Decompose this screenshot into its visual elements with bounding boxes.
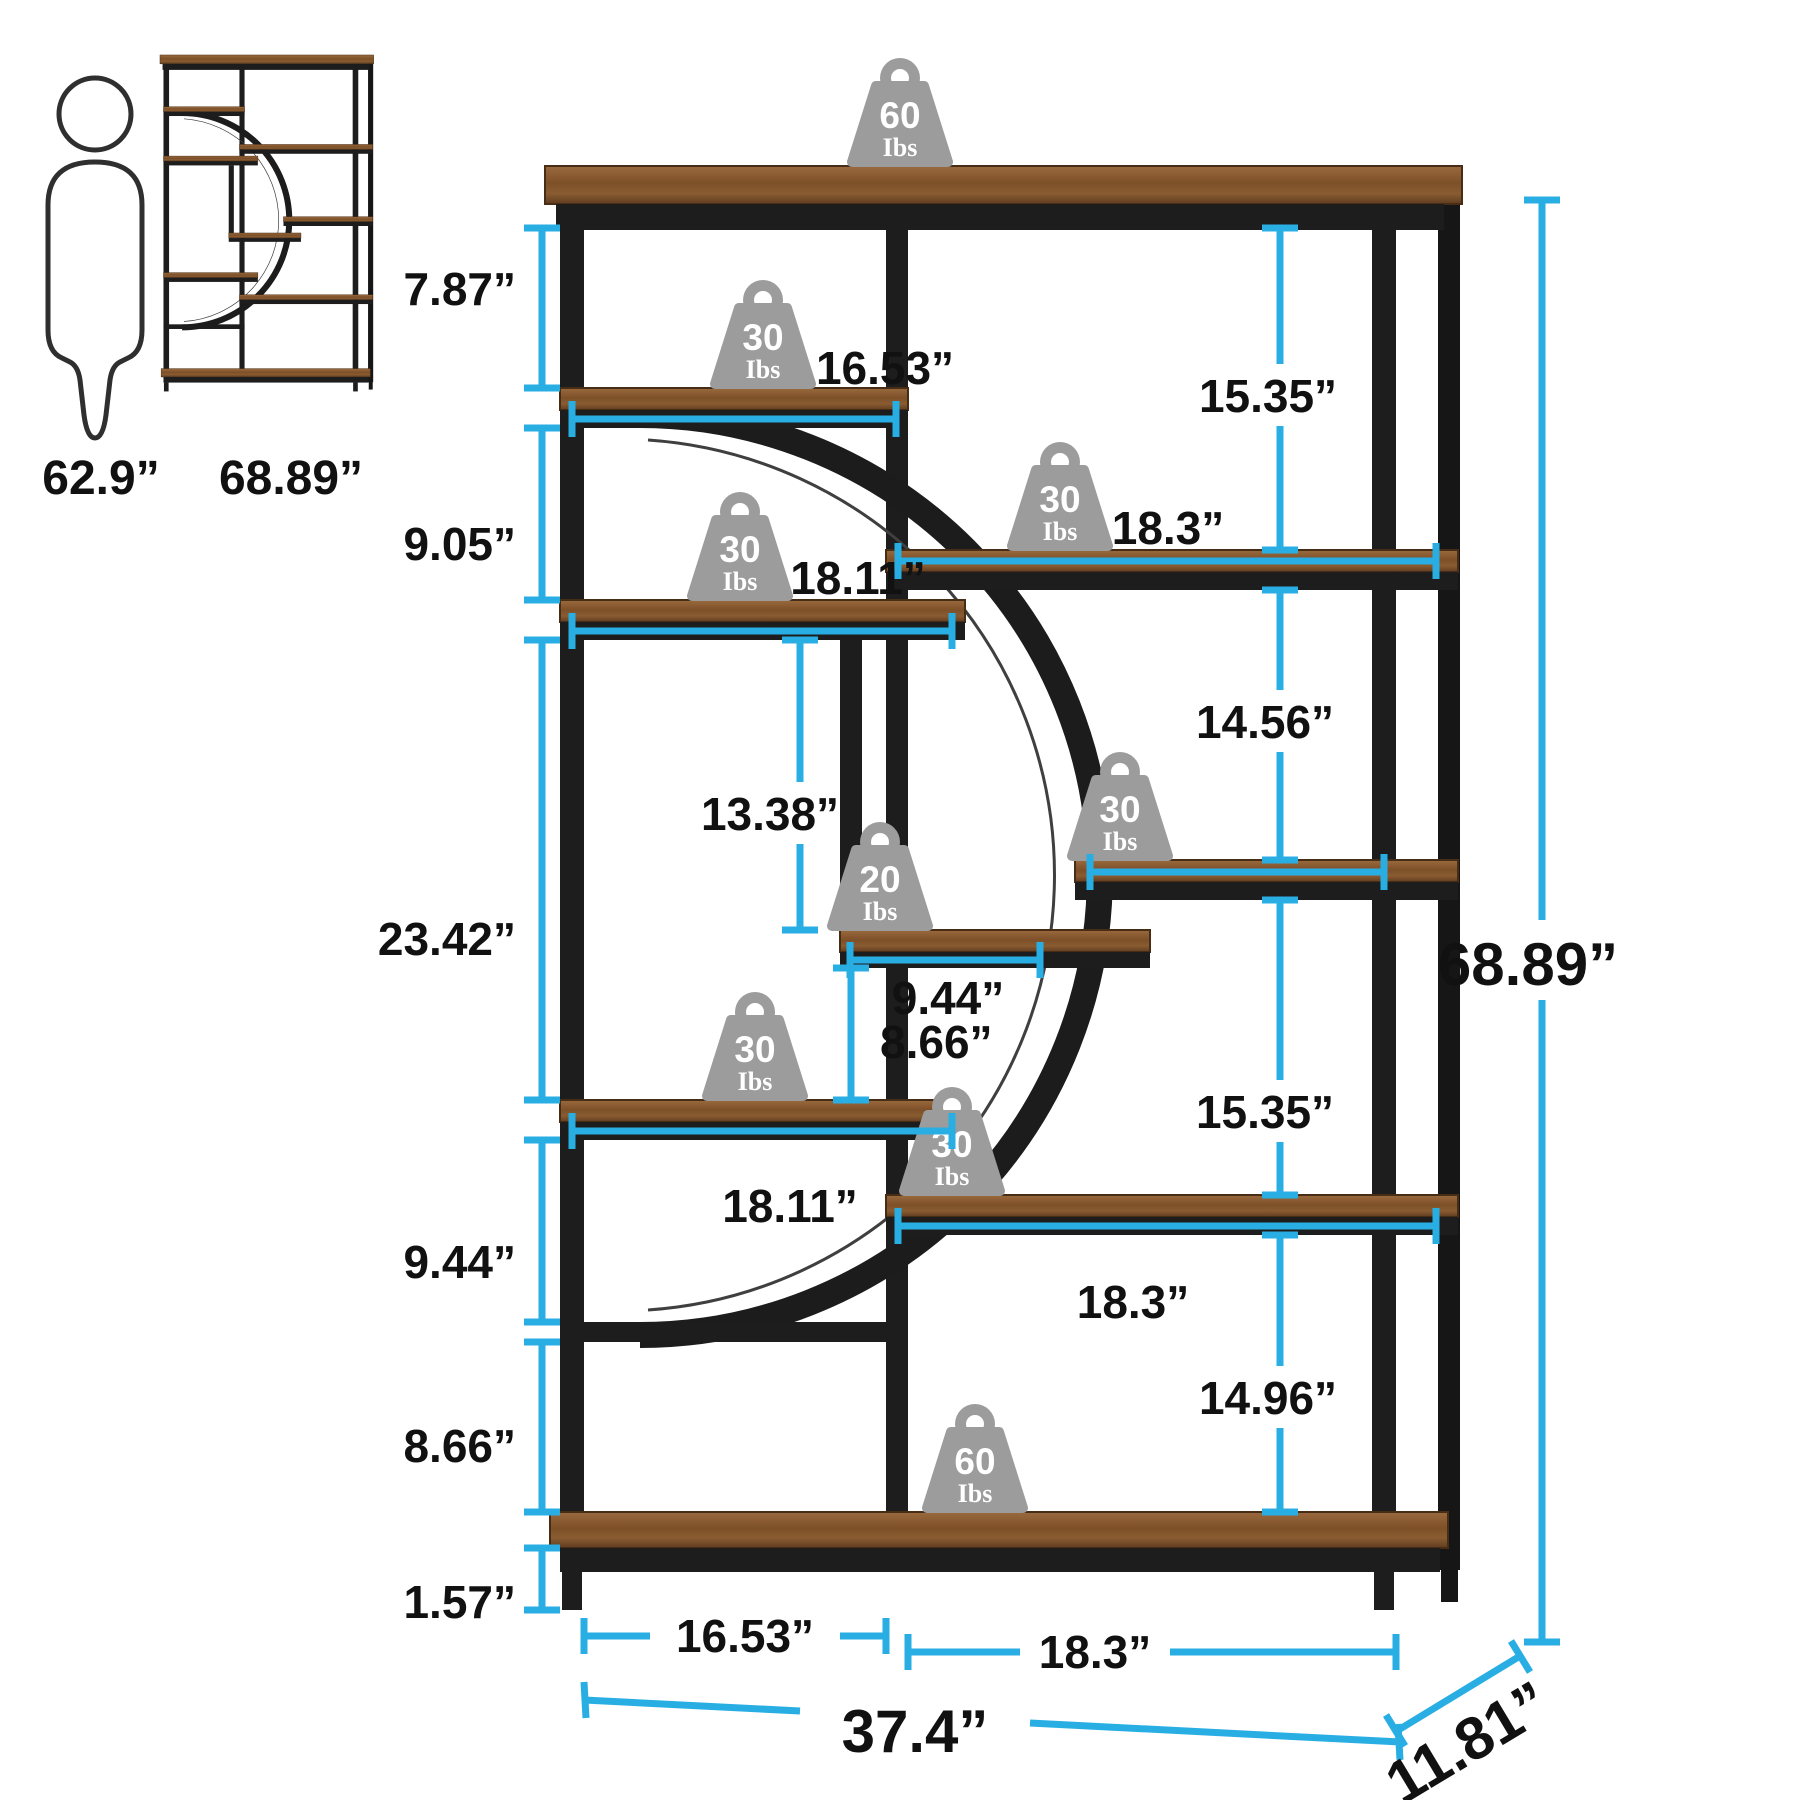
weight-shelf-d: 30 Ibs (1012, 442, 1108, 546)
human-body (48, 162, 142, 438)
dim-line-37-4 (584, 1682, 1400, 1760)
weight-shelf-a-value: 30 (742, 317, 783, 358)
dim-9-05-label: 9.05” (403, 518, 516, 570)
dim-16-53-shelf-a-label: 16.53” (816, 342, 954, 394)
dim-line-8-66-center (833, 968, 869, 1100)
dim-18-3-bottom-label: 18.3” (1039, 1626, 1152, 1678)
dim-15-35-top-label: 15.35” (1199, 370, 1337, 422)
weight-shelf-e-value: 30 (1099, 789, 1140, 830)
weight-bottom-value: 60 (954, 1441, 995, 1482)
weight-shelf-e-unit: Ibs (1103, 827, 1138, 856)
dim-line-13-38 (782, 640, 818, 930)
dim-37-4-label: 37.4” (842, 1698, 989, 1765)
dim-15-35-mid-label: 15.35” (1196, 1086, 1334, 1138)
weight-small-shelf-unit: Ibs (863, 897, 898, 926)
dim-14-56-label: 14.56” (1196, 696, 1334, 748)
dim-18-3-shelf-f-label: 18.3” (1077, 1276, 1190, 1328)
weight-shelf-b-value: 30 (719, 529, 760, 570)
dim-16-53-bottom-label: 16.53” (676, 1610, 814, 1662)
dim-line-7-87 (524, 228, 560, 388)
dim-line-15-35-mid (1262, 900, 1298, 1195)
weight-shelf-a-unit: Ibs (746, 355, 781, 384)
weight-shelf-a: 30 Ibs (715, 280, 811, 384)
weight-shelf-c: 30 Ibs (707, 992, 803, 1096)
dim-14-96-label: 14.96” (1199, 1372, 1337, 1424)
weight-top-unit: Ibs (883, 133, 918, 162)
dim-line-18-3-bottom (908, 1634, 1396, 1670)
weight-shelf-d-unit: Ibs (1043, 517, 1078, 546)
weight-bottom: 60 Ibs (927, 1404, 1023, 1508)
person-height-label: 62.9” (42, 452, 159, 505)
human-figure (48, 78, 142, 438)
dim-23-42-label: 23.42” (378, 913, 516, 965)
dim-line-9-44-left (524, 1140, 560, 1322)
weight-shelf-b: 30 Ibs (692, 492, 788, 596)
weight-bottom-unit: Ibs (958, 1479, 993, 1508)
weight-shelf-b-unit: Ibs (723, 567, 758, 596)
weight-small-shelf-value: 20 (859, 859, 900, 900)
dim-line-1-57 (524, 1548, 560, 1610)
dim-68-89-label: 68.89” (1438, 931, 1618, 998)
dim-line-8-66-left (524, 1342, 560, 1512)
human-head (59, 78, 131, 150)
dim-7-87-label: 7.87” (403, 263, 516, 315)
dim-18-11-shelf-c-label: 18.11” (722, 1180, 858, 1232)
dim-line-9-05 (524, 428, 560, 600)
dim-line-68-89 (1524, 200, 1560, 1642)
dim-8-66-center-label: 8.66” (880, 1016, 993, 1068)
thumbnail-bookcase (160, 55, 374, 391)
thumbnail-height-label: 68.89” (219, 452, 363, 505)
weight-shelf-d-value: 30 (1039, 479, 1080, 520)
dimension-diagram-svg: 62.9” 68.89” 60 Ibs 30 Ibs 30 Ibs 30 Ibs… (0, 0, 1800, 1800)
weight-top: 60 Ibs (852, 58, 948, 162)
dim-1-57-label: 1.57” (403, 1576, 516, 1628)
weight-shelf-c-unit: Ibs (738, 1067, 773, 1096)
dim-18-11-shelf-b-label: 18.11” (790, 552, 926, 604)
dim-line-23-42 (524, 640, 560, 1100)
weight-shelf-c-value: 30 (734, 1029, 775, 1070)
weight-top-value: 60 (879, 95, 920, 136)
dim-9-44-left-label: 9.44” (403, 1236, 516, 1288)
dim-8-66-left-label: 8.66” (403, 1420, 516, 1472)
dim-18-3-shelf-d-label: 18.3” (1112, 502, 1225, 554)
product-dimension-diagram: 62.9” 68.89” 60 Ibs 30 Ibs 30 Ibs 30 Ibs… (0, 0, 1800, 1800)
weight-shelf-f-unit: Ibs (935, 1162, 970, 1191)
dim-13-38-label: 13.38” (701, 788, 839, 840)
